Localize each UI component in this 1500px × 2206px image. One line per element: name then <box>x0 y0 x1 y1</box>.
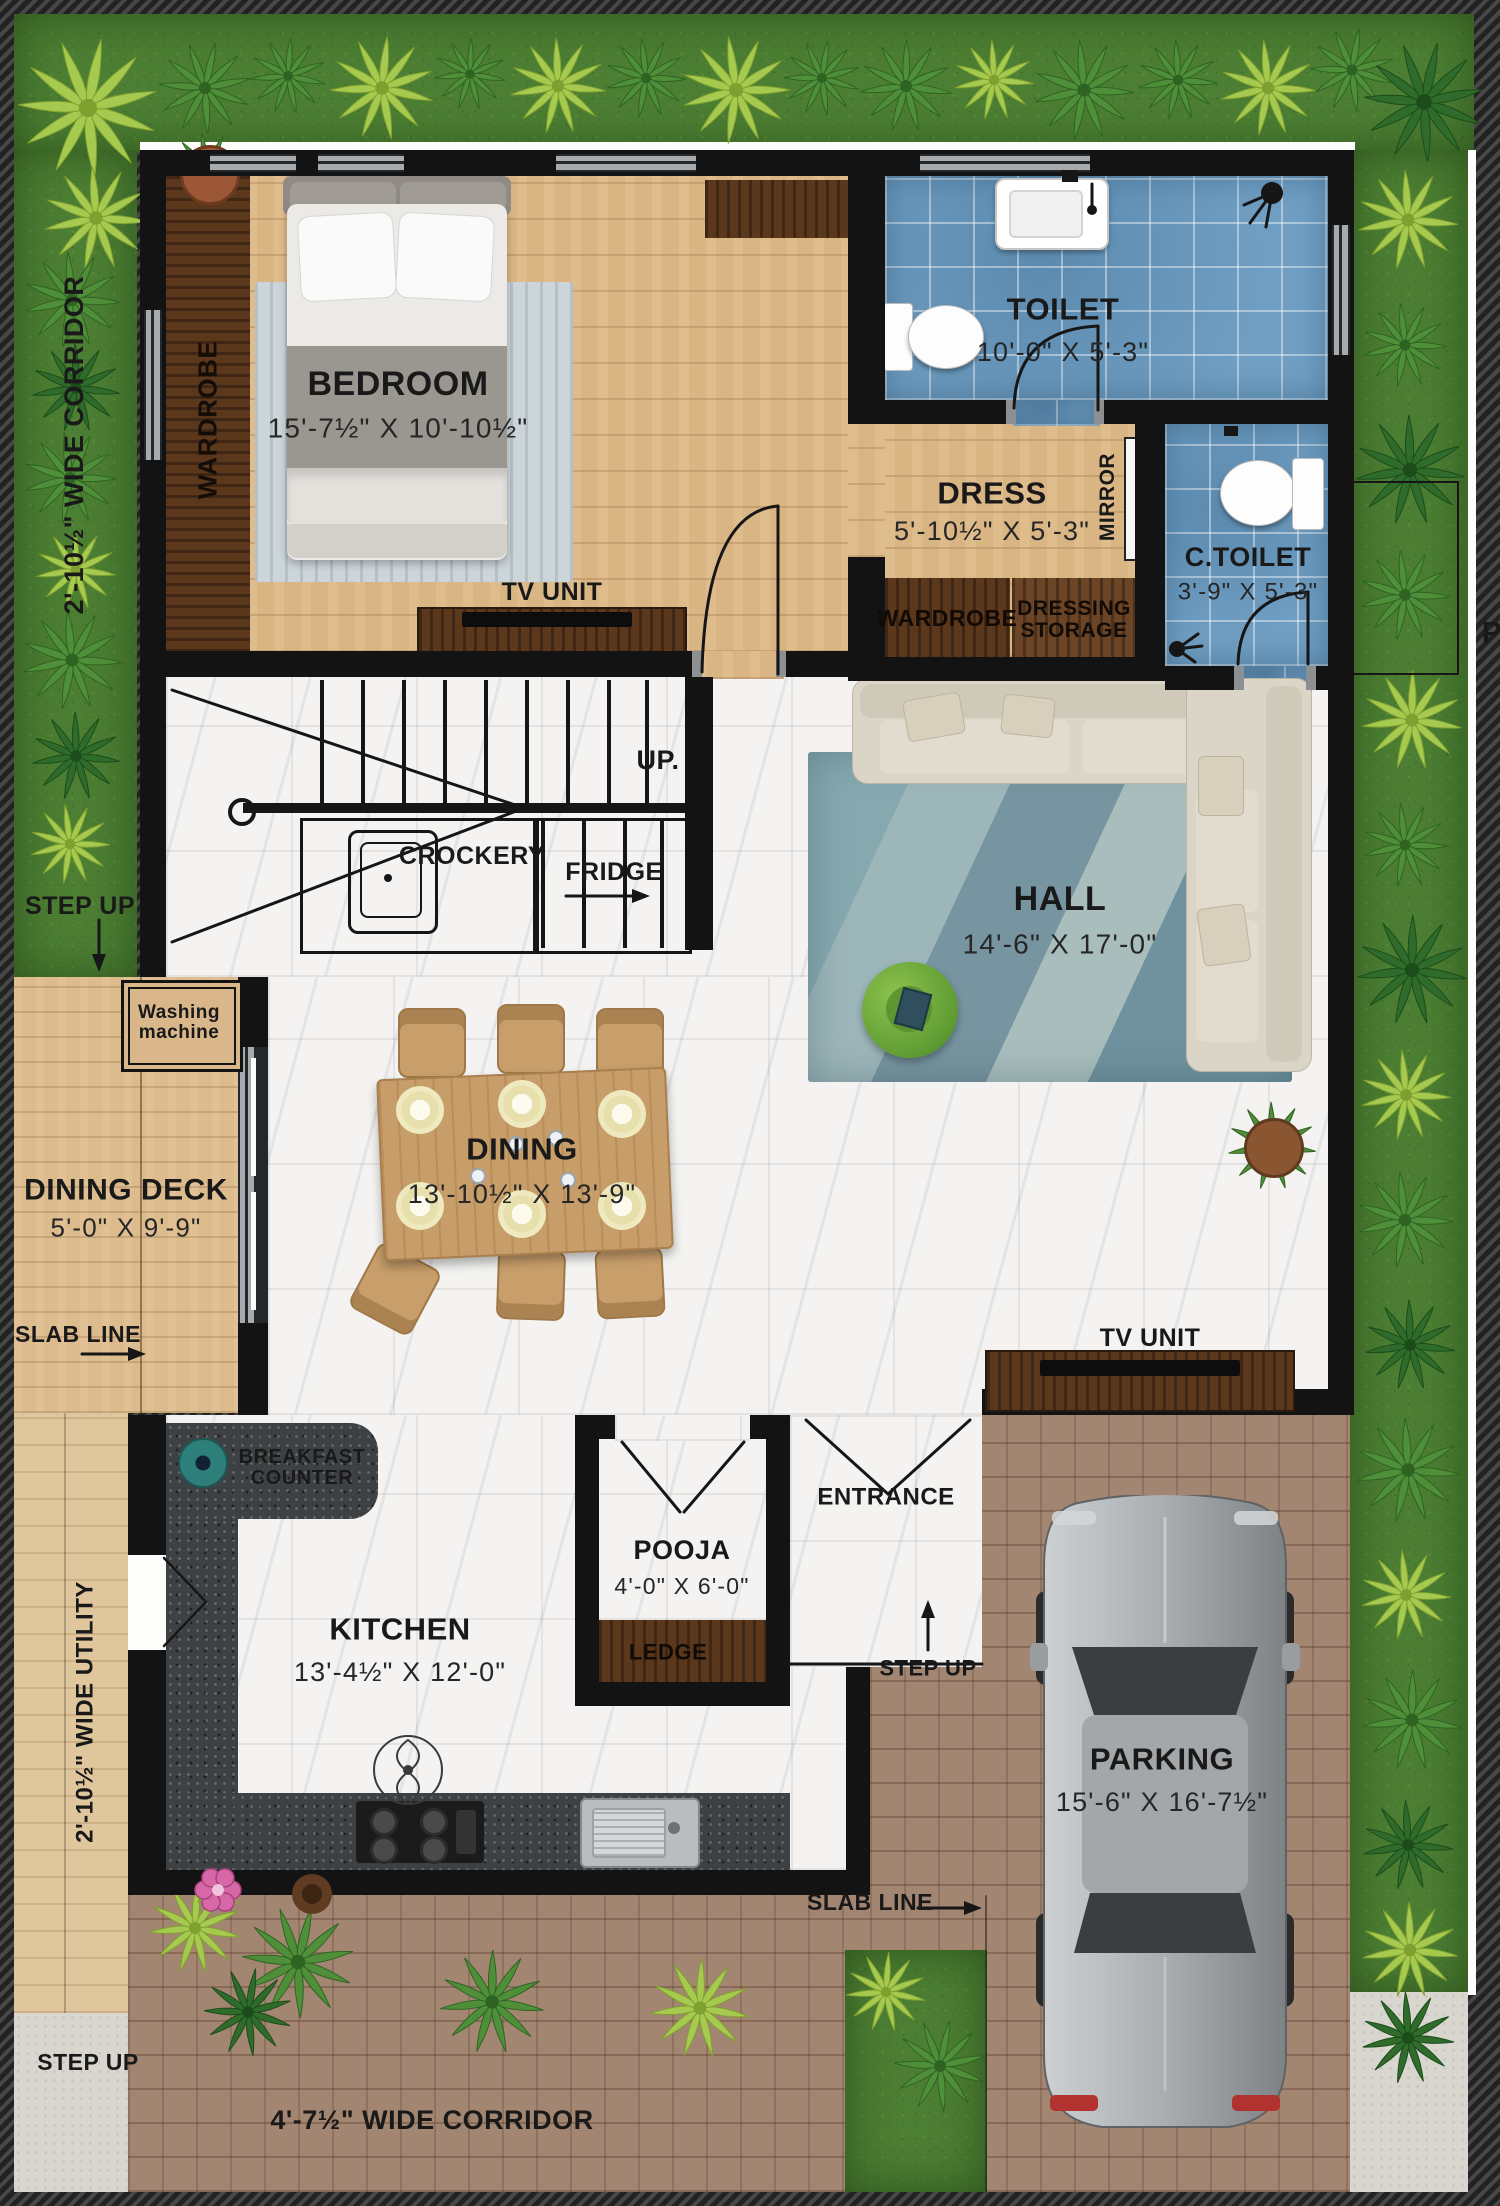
deck-door-slot1 <box>251 1058 256 1176</box>
room-label-dress: DRESS <box>937 478 1046 511</box>
plant-icon <box>1358 1547 1454 1643</box>
faucet <box>668 1822 680 1834</box>
plant-icon <box>891 2017 989 2115</box>
window-top-2 <box>318 154 404 172</box>
plant-icon <box>857 37 955 135</box>
room-label-dining: DINING <box>466 1134 578 1167</box>
plant-icon <box>201 1965 295 2059</box>
wall-stair-east <box>685 677 713 950</box>
ledge-label: LEDGE <box>629 1640 707 1663</box>
dresser-bedroom <box>705 180 848 238</box>
plant-icon <box>27 801 113 887</box>
pooja-door-patch <box>615 1415 750 1441</box>
plant-icon <box>1361 39 1487 165</box>
bedroom-door-patch <box>696 651 784 679</box>
plant-icon <box>431 35 509 113</box>
crockery-label: CROCKERY <box>399 843 545 869</box>
plant-icon <box>1359 667 1465 773</box>
room-dims-ctoilet: 3'-9" X 5'-3" <box>1178 579 1319 604</box>
sofa-pillow <box>1198 756 1244 816</box>
burner <box>370 1808 398 1836</box>
plant-icon <box>679 33 793 147</box>
stair-tread <box>541 818 545 948</box>
plant-icon <box>19 607 125 713</box>
dress-door-patch <box>848 424 885 557</box>
plant-icon <box>29 709 123 803</box>
plant-icon <box>1360 800 1450 890</box>
jamb <box>776 651 786 677</box>
plant-icon <box>1355 167 1461 273</box>
sofa-backrest <box>1266 686 1302 1062</box>
room-label-dining-deck: DINING DECK <box>24 1174 228 1206</box>
plant-icon <box>1031 37 1137 143</box>
room-label-pooja: POOJA <box>633 1536 730 1564</box>
drain <box>384 874 392 882</box>
room-label-bedroom: BEDROOM <box>307 367 488 403</box>
plant-icon <box>327 33 437 143</box>
plant-icon <box>1357 547 1453 643</box>
room-label-kitchen: KITCHEN <box>329 1614 470 1647</box>
floor-plan: 2'-10½" WIDE CORRIDOR WARDROBE BEDROOM 1… <box>0 0 1500 2206</box>
corridor-bottom-label: 4'-7½" WIDE CORRIDOR <box>270 2106 593 2134</box>
dressing-storage-label: DRESSING STORAGE <box>1012 598 1137 642</box>
utility-left-label: 2'-10½" WIDE UTILITY <box>72 1581 97 1843</box>
wall-pooja-south <box>575 1682 790 1706</box>
window-bedroom-left <box>144 310 162 460</box>
bed-pillow <box>395 212 495 303</box>
plant-icon <box>1359 1667 1465 1773</box>
step-up-left-label: STEP UP <box>25 893 135 919</box>
stair-tread <box>645 680 649 803</box>
wall-dress-south <box>848 657 1135 681</box>
plant-icon <box>781 37 863 119</box>
room-dims-dining-deck: 5'-0" X 9'-9" <box>51 1214 202 1241</box>
teal-plate <box>178 1438 228 1488</box>
jamb <box>1094 400 1104 424</box>
burner <box>370 1836 398 1864</box>
stair-tread <box>484 680 488 803</box>
wall-kitchen-west-b <box>128 1650 166 1870</box>
boundary-letter-p: P <box>1482 617 1500 649</box>
kitchen-window-gap <box>128 1555 166 1650</box>
wall-pooja-west <box>575 1415 599 1706</box>
room-dims-dining: 13'-10½" X 13'-9" <box>408 1180 637 1208</box>
plant-icon <box>1358 1047 1454 1143</box>
wall-bedroom-south-a <box>140 651 700 677</box>
kitchen-sink-basin <box>592 1808 666 1858</box>
plate <box>396 1086 444 1134</box>
plant-icon <box>156 39 254 137</box>
deck-door-slot2 <box>251 1192 256 1310</box>
jamb <box>1234 666 1244 690</box>
entrance-floor <box>790 1415 982 1667</box>
room-dims-toilet: 10'-0" X 5'-3" <box>977 338 1149 366</box>
tv-unit-hall-label: TV UNIT <box>1100 1325 1201 1351</box>
wall-entrance-east <box>846 1667 870 1870</box>
wall-bed-toilet-upper <box>848 150 885 424</box>
plant-icon <box>647 1955 753 2061</box>
dining-chair <box>594 1246 666 1319</box>
step-bottom-left <box>14 2013 128 2192</box>
step-up-entrance-label: STEP UP <box>879 1656 976 1679</box>
plant-icon <box>1352 412 1468 528</box>
bed-fold <box>287 468 507 524</box>
stair-tread <box>361 680 365 803</box>
burner <box>420 1836 448 1864</box>
slab-line-left-label: SLAB LINE <box>15 1322 141 1346</box>
plate <box>598 1090 646 1138</box>
fridge-space <box>536 818 692 954</box>
plant-pot <box>1244 1118 1304 1178</box>
plot-line-right <box>1468 150 1476 1995</box>
toilet-tank <box>1292 458 1324 530</box>
room-label-toilet: TOILET <box>1007 294 1120 327</box>
room-label-ctoilet: C.TOILET <box>1185 543 1312 571</box>
plant-icon <box>951 37 1037 123</box>
wall-kitchen-west-a <box>128 1415 166 1555</box>
breakfast-counter-label: BREAKFAST COUNTER <box>227 1447 377 1489</box>
plant-icon <box>1360 300 1450 390</box>
window-top-3 <box>556 154 696 172</box>
stove-tray <box>456 1810 476 1854</box>
plant-icon <box>247 35 329 117</box>
wall-ctoilet-south-a <box>1165 666 1240 690</box>
plant-icon <box>1353 1415 1463 1525</box>
toilet-bowl <box>908 305 984 369</box>
room-label-parking: PARKING <box>1090 1744 1234 1777</box>
flower-icon <box>190 1862 246 1918</box>
plant-icon <box>1362 1297 1458 1393</box>
room-label-hall: HALL <box>1014 882 1107 918</box>
burner <box>420 1808 448 1836</box>
sofa-pillow <box>1000 693 1056 738</box>
room-dims-bedroom: 15'-7½" X 10'-10½" <box>268 413 529 442</box>
plant-icon <box>507 35 609 137</box>
fridge-label: FRIDGE <box>565 859 662 885</box>
room-dims-pooja: 4'-0" X 6'-0" <box>614 1574 749 1598</box>
stair-tread <box>525 680 529 803</box>
washing-machine-label: Washing machine <box>129 1003 229 1043</box>
flower-pot <box>292 1874 332 1914</box>
plant-icon <box>1135 37 1221 123</box>
sink-basin <box>1009 190 1083 238</box>
wall-toilet-south-b <box>1100 400 1328 424</box>
wall-dress-ctoilet <box>1135 424 1165 681</box>
stair-tread <box>607 680 611 803</box>
room-dims-parking: 15'-6" X 16'-7½" <box>1056 1788 1268 1816</box>
plant-icon <box>603 35 689 121</box>
entrance-label: ENTRANCE <box>817 1484 954 1509</box>
room-dims-dress: 5'-10½" X 5'-3" <box>894 517 1090 545</box>
utility-line <box>64 1413 66 2013</box>
step-up-bottom-left-label: STEP UP <box>37 2050 139 2074</box>
up-label: UP. <box>636 746 679 774</box>
plant-icon <box>1359 1989 1457 2087</box>
wall-bedroom-south-b <box>780 651 848 677</box>
wall-toilet-south-a <box>885 400 1012 424</box>
sofa-pillow <box>1196 903 1252 967</box>
plant-icon <box>1359 1899 1461 2001</box>
plant-icon <box>1354 912 1470 1028</box>
wardrobe-dress-label: WARDROBE <box>877 606 1018 630</box>
jamb <box>1306 666 1316 690</box>
mirror-label: MIRROR <box>1097 453 1119 541</box>
stair-rail-knob <box>228 798 256 826</box>
tv-screen <box>1040 1360 1240 1376</box>
window-top-4 <box>920 154 1090 172</box>
tv-screen <box>462 612 632 627</box>
window-toilet-right <box>1332 225 1350 355</box>
jamb <box>1006 400 1016 424</box>
stair-tread <box>566 680 570 803</box>
plant-icon <box>1360 1797 1456 1893</box>
plate <box>498 1080 546 1128</box>
toilet-door-patch <box>1012 400 1100 426</box>
wall-deck-bottom <box>238 1323 268 1415</box>
stair-tread <box>320 680 324 803</box>
room-dims-kitchen: 13'-4½" X 12'-0" <box>294 1658 506 1686</box>
stair-tread <box>402 680 406 803</box>
tv-unit-bedroom-label: TV UNIT <box>502 579 603 605</box>
slab-line-bottom-label: SLAB LINE <box>807 1890 933 1914</box>
corridor-left-label: 2'-10½" WIDE CORRIDOR <box>60 276 88 615</box>
window-top-1 <box>210 154 296 172</box>
wall-pooja-east <box>766 1415 790 1706</box>
dining-chair <box>497 1004 565 1074</box>
bed-pillow <box>297 212 397 303</box>
stair-rail <box>243 803 689 813</box>
toilet-bowl <box>1220 460 1296 526</box>
room-dims-hall: 14'-6" X 17'-0" <box>963 929 1158 958</box>
dining-chair <box>496 1249 566 1321</box>
dining-chair <box>398 1008 466 1078</box>
plant-icon <box>1217 37 1319 139</box>
wall-left-stairs <box>140 677 166 977</box>
plant-icon <box>437 1947 547 2057</box>
wardrobe-bedroom-label: WARDROBE <box>194 341 221 500</box>
bed-foot <box>287 524 507 558</box>
car <box>1030 1495 1300 2155</box>
stair-tread <box>443 680 447 803</box>
jamb <box>692 651 702 677</box>
plant-icon <box>1354 1169 1456 1271</box>
